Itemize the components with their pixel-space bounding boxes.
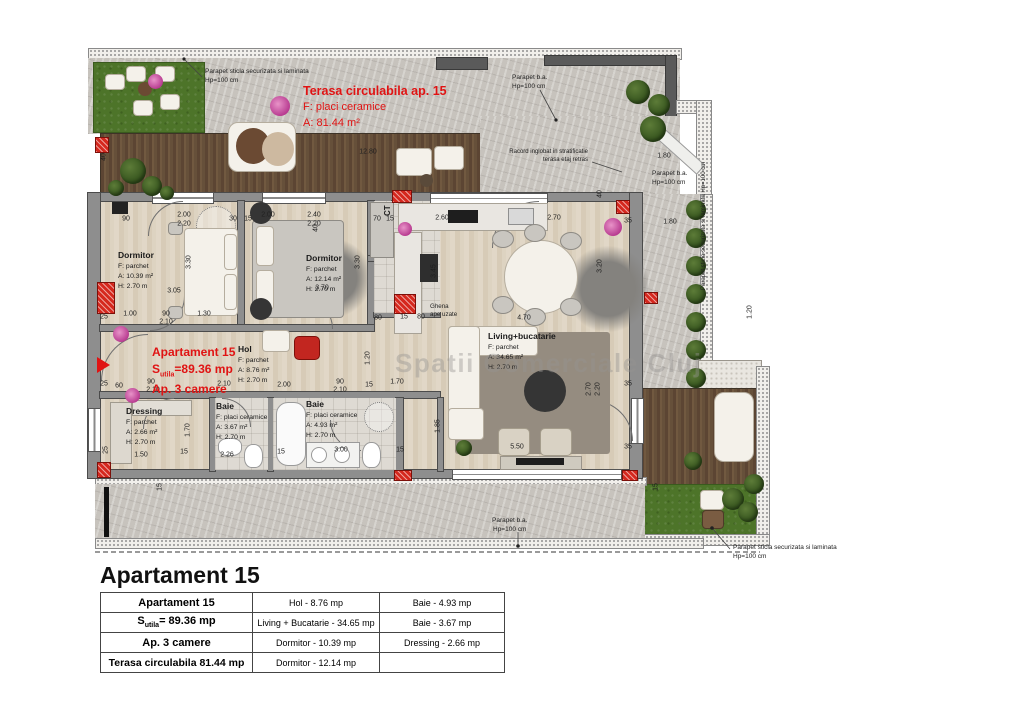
armchair xyxy=(498,428,530,456)
floorplan-canvas: 4012.801.8040902.002.2030152.002.402.207… xyxy=(0,0,1018,720)
garden-chair xyxy=(702,510,724,529)
cell: Baie - 3.67 mp xyxy=(380,613,505,633)
fur-rug xyxy=(568,244,648,334)
garden-chair xyxy=(133,100,153,116)
parapet-bumpout-right xyxy=(756,366,770,545)
ghena-shaft xyxy=(394,294,416,314)
toilet-baie2 xyxy=(362,442,381,468)
dimension-label: 1.20 xyxy=(747,305,754,319)
callout-racord: Racord inglobat in stratificatieterasa e… xyxy=(478,148,588,164)
cooktop xyxy=(448,210,478,223)
pillow xyxy=(224,234,237,270)
pillow xyxy=(256,226,274,266)
cell xyxy=(380,653,505,673)
sliding-door-living xyxy=(452,469,622,480)
garden-table xyxy=(138,82,152,96)
tv-dorm1 xyxy=(112,202,128,214)
garden-bottom-right xyxy=(640,484,758,536)
toilet-baie1 xyxy=(244,444,263,468)
callout-stair-parapet: Parapet b.a.Hp=100 cm xyxy=(652,170,687,188)
callout-top-right-parapet: Parapet b.a.Hp=100 cm xyxy=(512,74,547,92)
apartment-label: Apartament 15 Sutila=89.36 mp Ap. 3 came… xyxy=(152,344,235,398)
lounger xyxy=(714,392,754,462)
sofa-chaise xyxy=(448,408,484,440)
entrance-arrow-icon xyxy=(97,357,110,373)
table-row: Ap. 3 camere Dormitor - 10.39 mp Dressin… xyxy=(101,633,505,653)
window-dorm1 xyxy=(152,192,214,204)
wall-segment xyxy=(437,58,487,69)
cell: Ap. 3 camere xyxy=(101,633,253,653)
terrace-label: Terasa circulabila ap. 15 F: placi ceram… xyxy=(303,82,447,132)
cell: Dressing - 2.66 mp xyxy=(380,633,505,653)
corner-marker xyxy=(104,487,109,537)
fridge xyxy=(420,254,438,282)
nightstand xyxy=(168,222,183,235)
kitchen-sink xyxy=(508,208,534,225)
room-label-dormitor2: Dormitor F: parchet A: 12.14 m² H: 2.70 … xyxy=(306,252,342,295)
ghena-label: Ghenaape uzate xyxy=(430,303,457,320)
terrace-bottom-stone xyxy=(95,484,645,538)
pouf xyxy=(250,202,272,224)
window-dorm2 xyxy=(262,192,326,204)
cell: Terasa circulabila 81.44 mp xyxy=(101,653,253,673)
pillow xyxy=(224,274,237,310)
outdoor-side-table xyxy=(420,174,433,187)
dining-table xyxy=(504,240,578,314)
garden-chair xyxy=(700,490,724,510)
parapet-bottom-band xyxy=(95,538,704,549)
cell: Apartament 15 xyxy=(101,593,253,613)
table-row: Sutila= 89.36 mp Living + Bucatarie - 34… xyxy=(101,613,505,633)
outdoor-chair xyxy=(434,146,464,170)
terrace-right-wall xyxy=(666,56,676,116)
garden-chair xyxy=(160,94,180,110)
page-title: Apartament 15 xyxy=(100,562,260,589)
wall-niche-living xyxy=(438,398,443,471)
cell: Living + Bucatarie - 34.65 mp xyxy=(253,613,380,633)
cell: Sutila= 89.36 mp xyxy=(101,613,253,633)
wall-baie2-niche xyxy=(396,398,403,471)
window-dressing xyxy=(88,408,101,452)
callout-right-parapet: Parapet sticla securizata si laminata Hp… xyxy=(700,162,708,290)
red-armchair xyxy=(294,336,320,360)
table-row: Apartament 15 Hol - 8.76 mp Baie - 4.93 … xyxy=(101,593,505,613)
table-row: Terasa circulabila 81.44 mp Dormitor - 1… xyxy=(101,653,505,673)
summary-table: Apartament 15 Hol - 8.76 mp Baie - 4.93 … xyxy=(100,592,505,673)
wall-dorm1-dorm2 xyxy=(238,201,244,325)
callout-bottom-parapet: Parapet b.a.Hp=100 cm xyxy=(492,517,527,535)
terrace-topright-wall xyxy=(545,56,676,65)
kitchen-counter-side xyxy=(394,232,422,334)
cell: Dormitor - 10.39 mp xyxy=(253,633,380,653)
room-label-baie2: Baie F: placi ceramice A: 4.93 m² H: 2.7… xyxy=(306,398,357,441)
door-living-deck xyxy=(631,398,644,444)
sink-right xyxy=(334,447,350,463)
chair-blob xyxy=(262,132,294,166)
room-label-dressing: Dressing F: parchet A: 2.66 m² H: 2.70 m xyxy=(126,405,162,448)
bathtub xyxy=(276,402,306,466)
armchair xyxy=(540,428,572,456)
cell: Baie - 4.93 mp xyxy=(380,593,505,613)
watermark: Spatii Comerciale Cluj xyxy=(395,348,703,379)
room-label-dormitor1: Dormitor F: parchet A: 10.39 m² H: 2.70 … xyxy=(118,249,154,292)
callout-bottom-right-parapet: Parapet sticla securizata si laminataHp=… xyxy=(733,544,837,562)
outdoor-sofa xyxy=(396,148,432,176)
garden-chair xyxy=(105,74,125,90)
parapet-bottom-line xyxy=(95,551,760,553)
garden-chair xyxy=(126,66,146,82)
room-label-ct: CT xyxy=(374,205,398,216)
garden-chair xyxy=(155,66,175,82)
room-label-hol: Hol F: parchet A: 8.76 m² H: 2.70 m xyxy=(238,343,269,386)
room-label-baie1: Baie F: placi ceramice A: 3.67 m² H: 2.7… xyxy=(216,400,267,443)
cell: Hol - 8.76 mp xyxy=(253,593,380,613)
sink-left xyxy=(311,447,327,463)
pouf xyxy=(250,298,272,320)
callout-top-left-parapet: Parapet sticla securizata si laminataHp=… xyxy=(205,68,309,86)
nightstand xyxy=(168,306,183,319)
shower xyxy=(364,402,394,432)
cell: Dormitor - 12.14 mp xyxy=(253,653,380,673)
tv-living xyxy=(516,458,564,465)
garden-top-left xyxy=(93,62,205,133)
